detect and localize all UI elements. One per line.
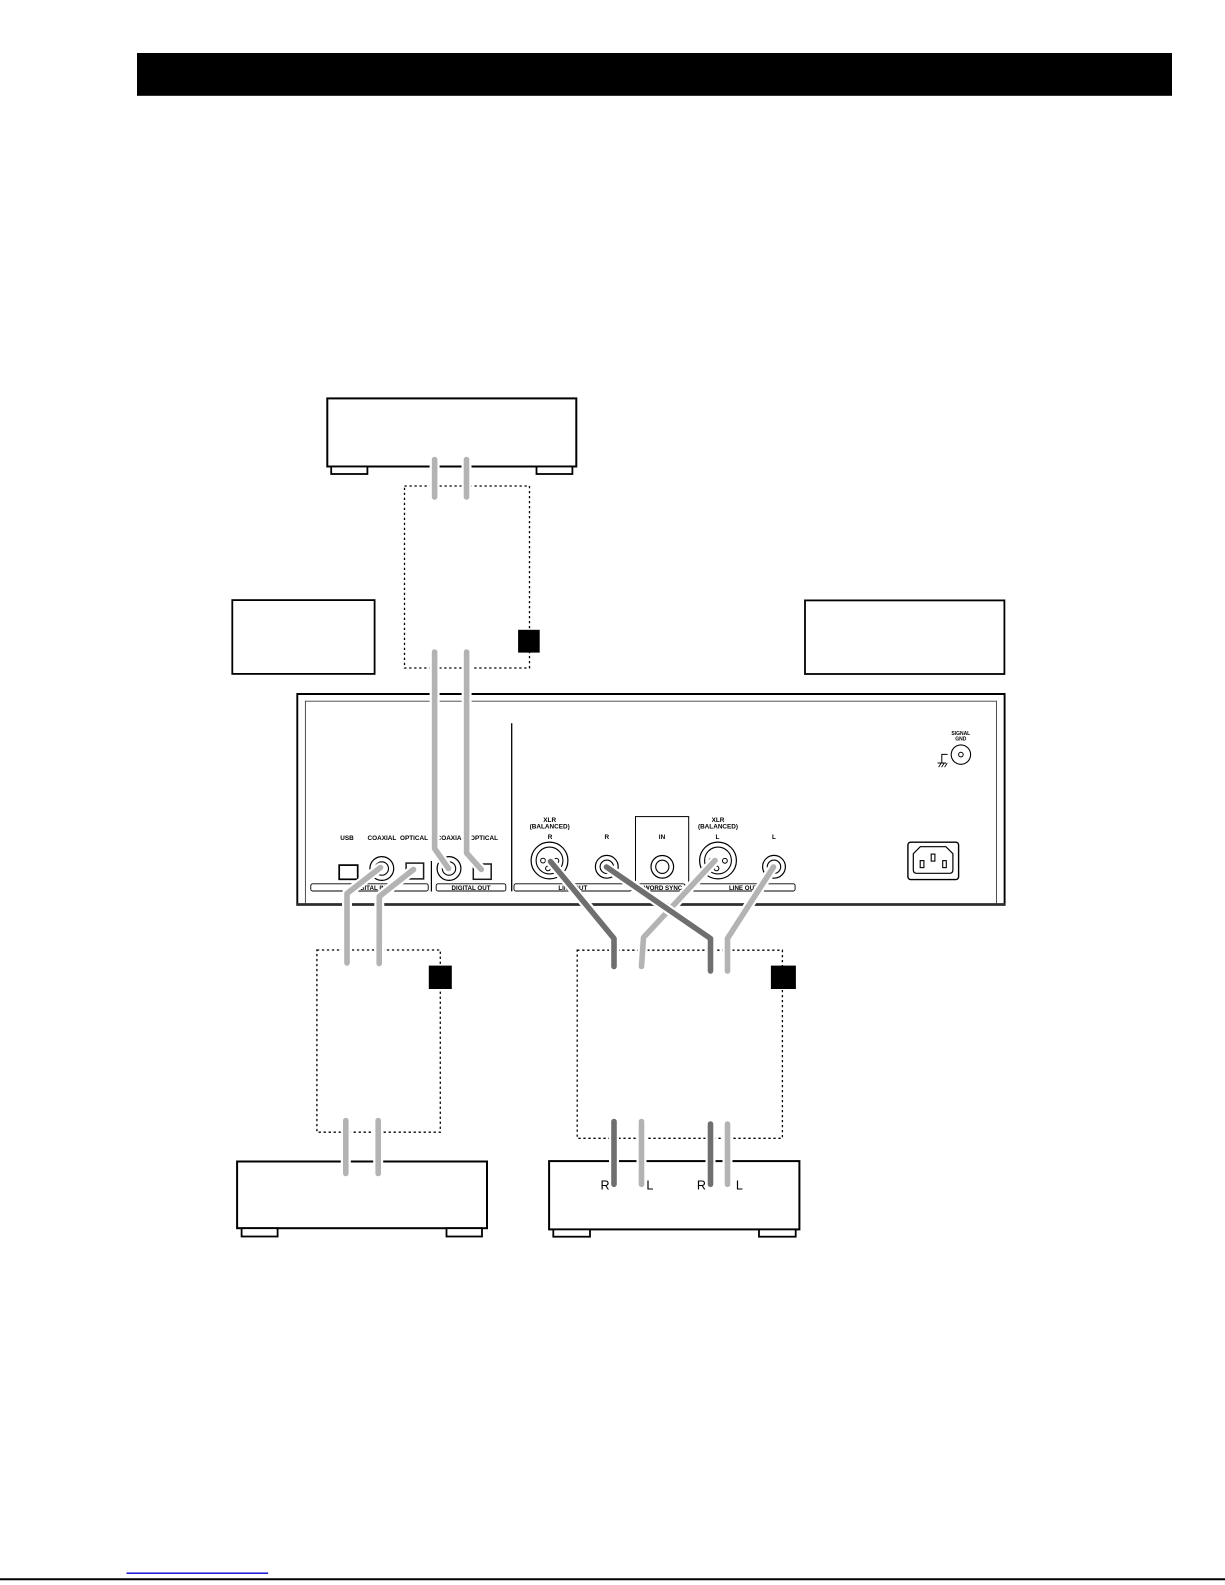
svg-text:USB: USB xyxy=(340,835,354,842)
svg-text:L: L xyxy=(772,834,776,841)
svg-text:R: R xyxy=(697,1179,706,1193)
svg-text:L: L xyxy=(736,1179,743,1193)
svg-text:L: L xyxy=(646,1179,653,1193)
svg-text:R: R xyxy=(548,834,553,841)
svg-text:COAXIAL: COAXIAL xyxy=(368,835,397,842)
svg-text:IN: IN xyxy=(659,834,666,841)
svg-text:OPTICAL: OPTICAL xyxy=(470,835,498,842)
svg-text:L: L xyxy=(716,834,720,841)
svg-text:COAXIAL: COAXIAL xyxy=(437,835,466,842)
svg-text:GND: GND xyxy=(955,737,967,743)
svg-text:(BALANCED): (BALANCED) xyxy=(530,824,570,831)
svg-text:(BALANCED): (BALANCED) xyxy=(698,824,738,831)
svg-text:OPTICAL: OPTICAL xyxy=(400,835,428,842)
svg-text:DIGITAL OUT: DIGITAL OUT xyxy=(452,885,491,892)
svg-text:R: R xyxy=(604,834,609,841)
svg-text:R: R xyxy=(600,1179,609,1193)
